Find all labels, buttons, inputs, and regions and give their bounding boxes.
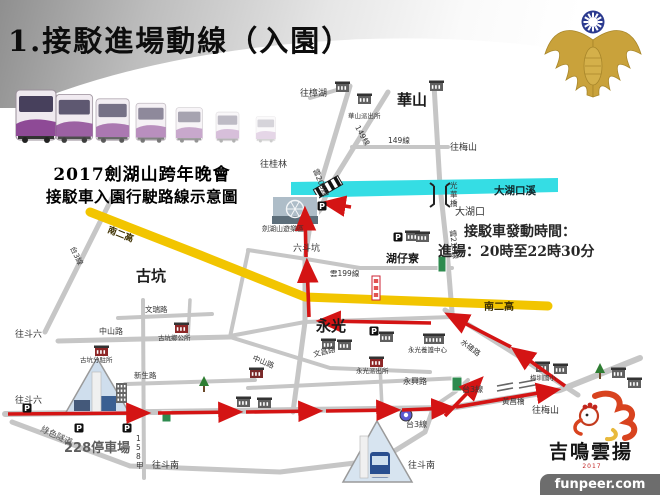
janfusan-park-photo	[272, 196, 318, 224]
road	[188, 300, 190, 338]
building-icon	[94, 346, 109, 357]
svg-text:P: P	[319, 202, 325, 211]
legend-line1: 2017劍湖山跨年晚會	[22, 160, 262, 185]
map-label: 中山路	[99, 326, 123, 336]
map-legend-title: 2017劍湖山跨年晚會 接駁車入園行駛路線示意圖	[22, 160, 262, 207]
logo-calligraphy: 吉鳴雲揚	[538, 437, 644, 464]
park-tree-icon	[199, 376, 209, 392]
building-icon	[415, 232, 430, 243]
janfusan-label: 劍湖山遊樂區	[262, 224, 304, 233]
shuttle-route-arrow	[326, 410, 396, 411]
shuttle-route-arrow	[158, 412, 238, 413]
road	[143, 300, 144, 478]
road	[248, 250, 452, 268]
svg-text:P: P	[76, 424, 82, 433]
schedule-line2: 進場：20時至22時30分	[438, 243, 648, 263]
building-icon	[627, 378, 642, 389]
area-gukeng: 古坑	[136, 267, 166, 285]
building-icon	[611, 368, 626, 379]
road	[248, 378, 460, 388]
map-label: 南二高	[484, 300, 514, 313]
building-icon	[369, 357, 384, 368]
shuttle-route-arrow	[307, 263, 309, 317]
shuttle-route-arrow	[8, 413, 146, 414]
parking-icon: P	[318, 202, 327, 212]
building-icon	[249, 368, 264, 379]
building-icon	[357, 94, 372, 105]
map-label: 古坑分駐所	[80, 355, 113, 364]
schedule-line1: 接駁車發動時間：	[438, 223, 648, 243]
map-label: 水碓路	[459, 337, 483, 359]
building-icon	[423, 334, 445, 345]
area-yongguang: 永光	[315, 317, 346, 335]
dir-douliu-2: 往斗六	[15, 394, 42, 406]
logo-subtext: 2017	[548, 463, 636, 470]
area-liudoukeng: 六斗坑	[293, 242, 320, 254]
parking-icon: P	[123, 424, 132, 434]
building-icon	[337, 340, 352, 351]
parking-icon: P	[370, 327, 379, 337]
police-badge-icon	[541, 2, 645, 102]
map-label: 台3線	[406, 419, 427, 429]
area-huzailiao: 湖仔寮	[386, 251, 420, 265]
building-icon	[236, 397, 251, 408]
building-icon	[379, 332, 394, 343]
parking-228-label: 228停車場	[64, 440, 130, 456]
dir-meishan-north: 往梅山	[450, 141, 477, 153]
route-number-sign	[372, 276, 380, 300]
dir-dounan-2: 往斗南	[408, 459, 435, 471]
map-label: 梅圳國小	[530, 373, 557, 382]
building-icon	[174, 323, 189, 334]
road-shield-sign	[452, 377, 462, 391]
photo-triangle-bottom	[343, 421, 412, 482]
parking-icon: P	[75, 424, 84, 434]
building-icon	[429, 81, 444, 92]
watermark: funpeer.com	[540, 474, 660, 495]
building-icon	[116, 383, 127, 403]
dir-dounan-1: 往斗南	[152, 459, 179, 471]
bus-fleet-photo	[16, 90, 276, 143]
map-label: 台3線	[462, 384, 483, 394]
svg-text:P: P	[124, 424, 130, 433]
shuttle-route-arrow	[246, 411, 318, 412]
bridge-guanghua-label: 光華橋	[450, 180, 458, 208]
area-huashan: 華山	[397, 91, 427, 109]
map-label: 149線	[388, 135, 410, 145]
dir-douliu-1: 往斗六	[15, 328, 42, 340]
dir-guilin: 往桂林	[260, 158, 287, 170]
area-dahukou: 大湖口	[455, 205, 485, 218]
building-icon	[553, 364, 568, 375]
svg-text:P: P	[395, 233, 401, 242]
parking-icon: P	[394, 233, 403, 243]
building-icon	[335, 82, 350, 93]
legend-line2: 接駁車入園行駛路線示意圖	[22, 185, 262, 207]
svg-text:P: P	[371, 327, 377, 336]
road	[118, 314, 212, 318]
map-label: 永光養護中心	[408, 345, 448, 354]
map-label: 新生路	[134, 370, 157, 380]
shuttle-route-arrow	[326, 203, 351, 207]
map-label: 古坑鄉公所	[158, 333, 191, 342]
shuttle-route-arrow	[402, 408, 451, 410]
map-label: 華山派出所	[348, 111, 381, 120]
map-label: 雲199線	[330, 268, 360, 278]
shuttle-schedule: 接駁車發動時間： 進場：20時至22時30分	[438, 223, 648, 262]
shuttle-route-arrow	[449, 315, 511, 347]
road	[313, 92, 388, 218]
map-label: 永光派出所	[356, 366, 389, 375]
map-label: 文瑞路	[145, 304, 168, 314]
river-label: 大湖口溪	[494, 184, 536, 197]
dir-zhanghu: 往樟湖	[300, 87, 327, 99]
map-label: 永興路	[403, 376, 427, 386]
page-title: 1.接駁進場動線（入園）	[8, 18, 352, 60]
building-icon	[257, 398, 272, 409]
bridge-huangchang-label: 黃昌橋	[502, 396, 525, 406]
